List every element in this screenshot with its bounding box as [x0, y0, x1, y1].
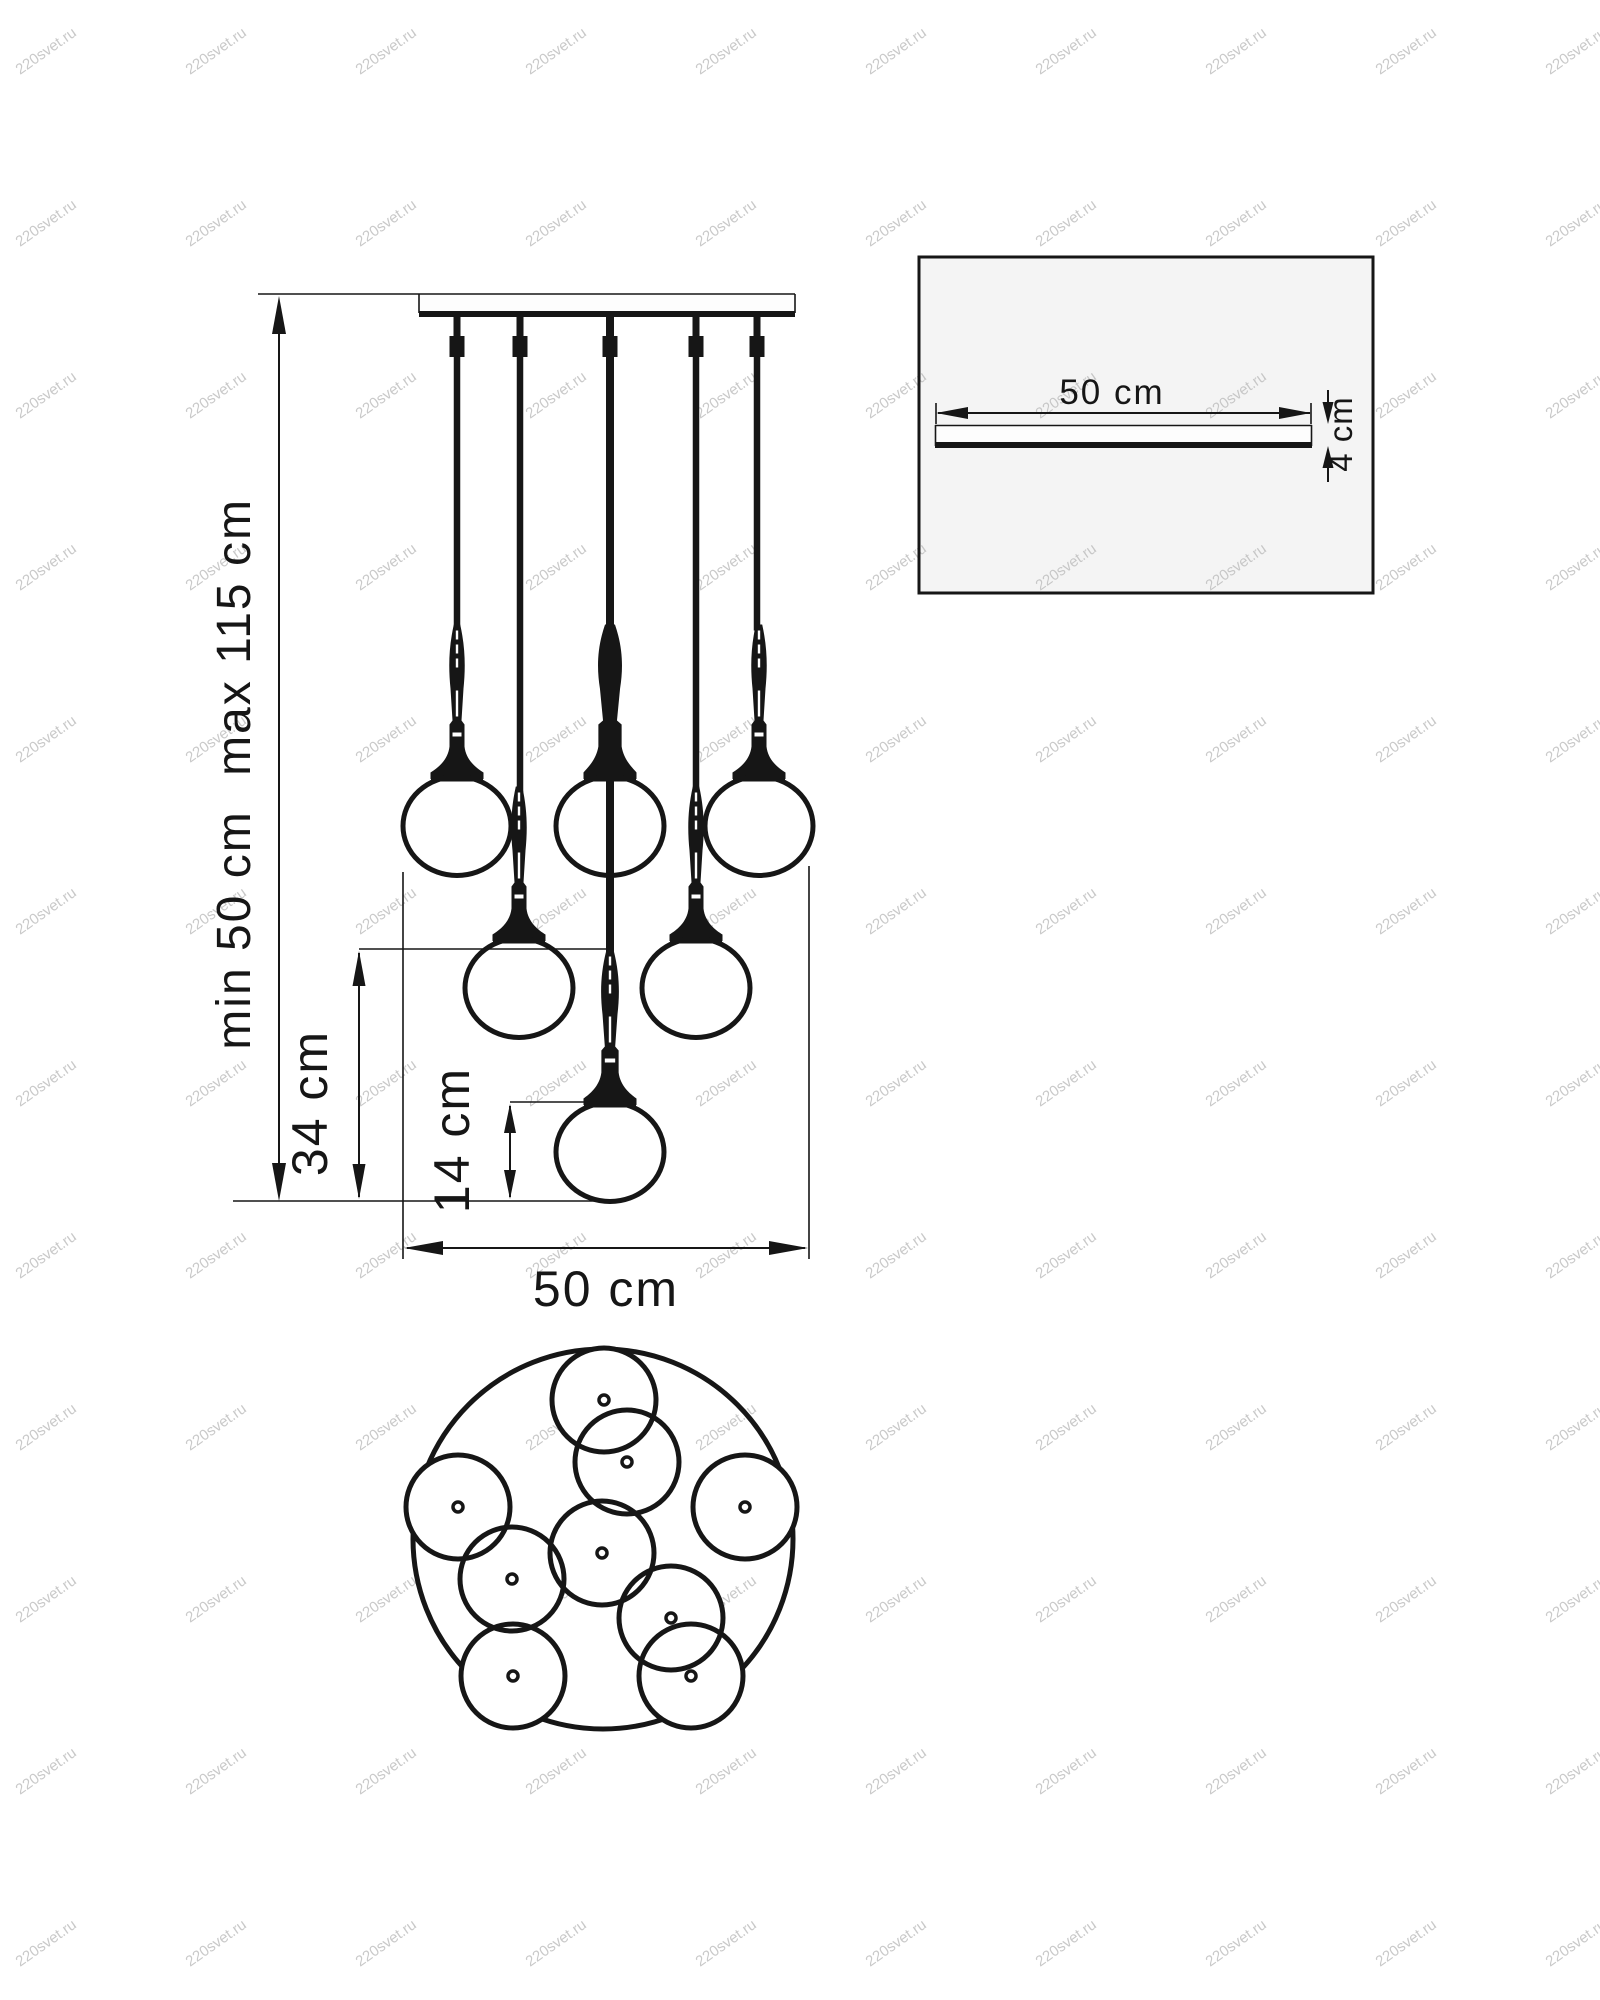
watermark-text: 220svet.ru — [1373, 540, 1440, 594]
pendant-globe — [403, 777, 511, 876]
watermark-text: 220svet.ru — [1033, 196, 1100, 250]
watermark-text: 220svet.ru — [353, 884, 420, 938]
watermark-text: 220svet.ru — [13, 884, 80, 938]
watermark-text: 220svet.ru — [13, 368, 80, 422]
watermark-text: 220svet.ru — [1033, 1916, 1100, 1970]
label-min-height: min 50 cm — [208, 810, 261, 1049]
holder-stem-slit — [456, 691, 458, 717]
label-max-height: max 115 cm — [208, 498, 261, 776]
watermark-text: 220svet.ru — [1543, 1228, 1600, 1282]
watermark-text: 220svet.ru — [13, 1400, 80, 1454]
dim-14-arrow-up — [504, 1104, 516, 1133]
watermark-text: 220svet.ru — [1203, 884, 1270, 938]
watermark-text: 220svet.ru — [523, 1744, 590, 1798]
watermark-text: 220svet.ru — [1203, 712, 1270, 766]
watermark-text: 220svet.ru — [1373, 1228, 1440, 1282]
watermark-text: 220svet.ru — [1543, 1744, 1600, 1798]
watermark-text: 220svet.ru — [353, 1916, 420, 1970]
watermark-text: 220svet.ru — [1203, 1916, 1270, 1970]
detail-plate-bottom-bar — [935, 442, 1312, 448]
watermark-text: 220svet.ru — [1203, 1056, 1270, 1110]
watermark-text: 220svet.ru — [183, 1916, 250, 1970]
watermark-text: 220svet.ru — [13, 1056, 80, 1110]
holder-dash — [695, 807, 697, 816]
dim-34-arrow-down — [353, 1164, 366, 1199]
watermark-text: 220svet.ru — [523, 1916, 590, 1970]
watermark-text: 220svet.ru — [1373, 368, 1440, 422]
watermark-text: 220svet.ru — [1033, 1228, 1100, 1282]
watermark-text: 220svet.ru — [693, 24, 760, 78]
top-view-globe-center-dot — [740, 1502, 750, 1512]
watermark-text: 220svet.ru — [1033, 884, 1100, 938]
watermark-text: 220svet.ru — [1543, 1572, 1600, 1626]
dim-14-arrow-down — [504, 1170, 516, 1199]
watermark-text: 220svet.ru — [863, 1400, 930, 1454]
watermark-text: 220svet.ru — [693, 1916, 760, 1970]
watermark-text: 220svet.ru — [353, 368, 420, 422]
holder-collar-slit — [605, 1059, 615, 1063]
watermark-text: 220svet.ru — [1543, 368, 1600, 422]
watermark-text: 220svet.ru — [1543, 24, 1600, 78]
watermark-text: 220svet.ru — [1373, 1572, 1440, 1626]
detail-plate-body — [936, 426, 1311, 442]
top-view-globe-center-dot — [508, 1671, 518, 1681]
watermark-text: 220svet.ru — [1033, 1572, 1100, 1626]
watermark-text: 220svet.ru — [1203, 24, 1270, 78]
watermark-text: 220svet.ru — [523, 24, 590, 78]
watermark-text: 220svet.ru — [353, 1744, 420, 1798]
holder-dash — [518, 793, 520, 802]
watermark-text: 220svet.ru — [183, 24, 250, 78]
holder-stem-slit — [758, 691, 760, 717]
top-view-globe-center-dot — [507, 1574, 517, 1584]
pendant-globe — [465, 939, 573, 1038]
holder-dash — [758, 645, 760, 654]
watermark-text: 220svet.ru — [1543, 1056, 1600, 1110]
label-drop-34: 34 cm — [282, 1030, 338, 1176]
watermark-text: 220svet.ru — [13, 1744, 80, 1798]
watermark-text: 220svet.ru — [523, 368, 590, 422]
top-view-globe-center-dot — [599, 1395, 609, 1405]
watermark-text: 220svet.ru — [353, 1056, 420, 1110]
watermark-text: 220svet.ru — [693, 1228, 760, 1282]
watermark-text: 220svet.ru — [353, 1572, 420, 1626]
watermark-text: 220svet.ru — [353, 1400, 420, 1454]
watermark-text: 220svet.ru — [353, 712, 420, 766]
watermark-text: 220svet.ru — [183, 1400, 250, 1454]
watermark-text: 220svet.ru — [183, 196, 250, 250]
label-drop-14: 14 cm — [424, 1067, 480, 1213]
watermark-text: 220svet.ru — [1373, 884, 1440, 938]
watermark-text: 220svet.ru — [13, 1228, 80, 1282]
watermark-text: 220svet.ru — [1543, 712, 1600, 766]
watermark-text: 220svet.ru — [1033, 24, 1100, 78]
top-view-globe-center-dot — [686, 1671, 696, 1681]
watermark-text: 220svet.ru — [183, 1056, 250, 1110]
label-detail-thickness: 4 cm — [1322, 396, 1359, 472]
watermark-text: 220svet.ru — [183, 368, 250, 422]
watermark-text: 220svet.ru — [1203, 196, 1270, 250]
lamp-dimension-diagram: 220svet.ru220svet.ru220svet.ru220svet.ru… — [0, 0, 1600, 2000]
watermark-text: 220svet.ru — [353, 196, 420, 250]
watermark-text: 220svet.ru — [693, 1056, 760, 1110]
holder-dash — [609, 971, 611, 980]
watermark-text: 220svet.ru — [1543, 1400, 1600, 1454]
holder-stem-slit — [518, 853, 520, 879]
watermark-text: 220svet.ru — [863, 884, 930, 938]
watermark-text: 220svet.ru — [863, 1228, 930, 1282]
watermark-text: 220svet.ru — [863, 1572, 930, 1626]
holder-collar-slit — [453, 733, 462, 737]
watermark-text: 220svet.ru — [1203, 1572, 1270, 1626]
holder-collar-slit — [515, 895, 524, 899]
holder-dash — [758, 659, 760, 668]
watermark-text: 220svet.ru — [693, 1400, 760, 1454]
watermark-text: 220svet.ru — [863, 1056, 930, 1110]
holder-dash — [518, 807, 520, 816]
watermark-text: 220svet.ru — [1033, 1400, 1100, 1454]
watermark-text: 220svet.ru — [1543, 1916, 1600, 1970]
watermark-text: 220svet.ru — [1543, 196, 1600, 250]
watermark-text: 220svet.ru — [863, 24, 930, 78]
holder-dash — [609, 985, 611, 994]
watermark-text: 220svet.ru — [693, 196, 760, 250]
holder-dash — [695, 793, 697, 802]
watermark-text: 220svet.ru — [13, 196, 80, 250]
technical-drawing-page: 220svet.ru220svet.ru220svet.ru220svet.ru… — [0, 0, 1600, 2000]
watermark-text: 220svet.ru — [523, 540, 590, 594]
holder-collar-slit — [755, 733, 764, 737]
label-detail-width: 50 cm — [1059, 373, 1164, 412]
watermark-text: 220svet.ru — [1373, 1400, 1440, 1454]
watermark-text: 220svet.ru — [1373, 1916, 1440, 1970]
watermark-text: 220svet.ru — [1033, 1056, 1100, 1110]
watermark-text: 220svet.ru — [13, 1572, 80, 1626]
holder-stem-slit — [695, 853, 697, 879]
watermark-text: 220svet.ru — [693, 540, 760, 594]
watermark-text: 220svet.ru — [693, 368, 760, 422]
watermark-text: 220svet.ru — [693, 1744, 760, 1798]
dim-34-arrow-up — [353, 951, 366, 986]
watermark-text: 220svet.ru — [183, 1572, 250, 1626]
watermark-text: 220svet.ru — [353, 24, 420, 78]
holder-dash — [609, 957, 611, 966]
watermark-text: 220svet.ru — [13, 24, 80, 78]
holder-dash — [518, 821, 520, 830]
holder-collar-slit — [692, 895, 701, 899]
top-view-globe-center-dot — [622, 1457, 632, 1467]
pendant-globe — [642, 939, 750, 1038]
watermark-text: 220svet.ru — [1373, 712, 1440, 766]
top-view-globe-center-dot — [597, 1548, 607, 1558]
watermark-text: 220svet.ru — [863, 196, 930, 250]
ceiling-plate — [419, 294, 795, 317]
holder-dash — [695, 821, 697, 830]
watermark-text: 220svet.ru — [1543, 540, 1600, 594]
label-front-width: 50 cm — [533, 1261, 679, 1317]
watermark-text: 220svet.ru — [353, 1228, 420, 1282]
holder-dash — [758, 631, 760, 640]
watermark-text: 220svet.ru — [1203, 1228, 1270, 1282]
holder-dash — [456, 631, 458, 640]
top-view-globe-center-dot — [666, 1613, 676, 1623]
watermark-text: 220svet.ru — [183, 1228, 250, 1282]
watermark-text: 220svet.ru — [13, 712, 80, 766]
ceiling-plate-body — [420, 295, 794, 312]
watermark-text: 220svet.ru — [1203, 1744, 1270, 1798]
watermark-text: 220svet.ru — [1373, 1744, 1440, 1798]
watermark-text: 220svet.ru — [13, 540, 80, 594]
front-view: max 115 cm min 50 cm 34 cm 14 cm 50 cm — [208, 294, 813, 1317]
watermark-text: 220svet.ru — [1203, 1400, 1270, 1454]
watermark-text: 220svet.ru — [1373, 24, 1440, 78]
watermark-text: 220svet.ru — [523, 712, 590, 766]
top-view-globe-center-dot — [453, 1502, 463, 1512]
watermark-text: 220svet.ru — [863, 1744, 930, 1798]
watermark-text: 220svet.ru — [863, 1916, 930, 1970]
watermark-text: 220svet.ru — [1373, 196, 1440, 250]
height-dim-arrow-up — [272, 296, 286, 334]
width-dim-arrow-right — [769, 1241, 808, 1255]
holder-dash — [456, 659, 458, 668]
pendant-globe — [705, 777, 813, 876]
pendant-globe — [556, 1103, 664, 1202]
watermark-text: 220svet.ru — [863, 712, 930, 766]
watermark-text: 220svet.ru — [1033, 1744, 1100, 1798]
watermark-text: 220svet.ru — [1033, 712, 1100, 766]
top-view — [406, 1348, 797, 1729]
holder-stem-slit — [609, 1017, 611, 1043]
holder-dash — [456, 645, 458, 654]
watermark-text: 220svet.ru — [523, 196, 590, 250]
watermark-text: 220svet.ru — [1373, 1056, 1440, 1110]
watermark-text: 220svet.ru — [353, 540, 420, 594]
watermark-text: 220svet.ru — [1543, 884, 1600, 938]
watermark-text: 220svet.ru — [13, 1916, 80, 1970]
watermark-text: 220svet.ru — [183, 1744, 250, 1798]
